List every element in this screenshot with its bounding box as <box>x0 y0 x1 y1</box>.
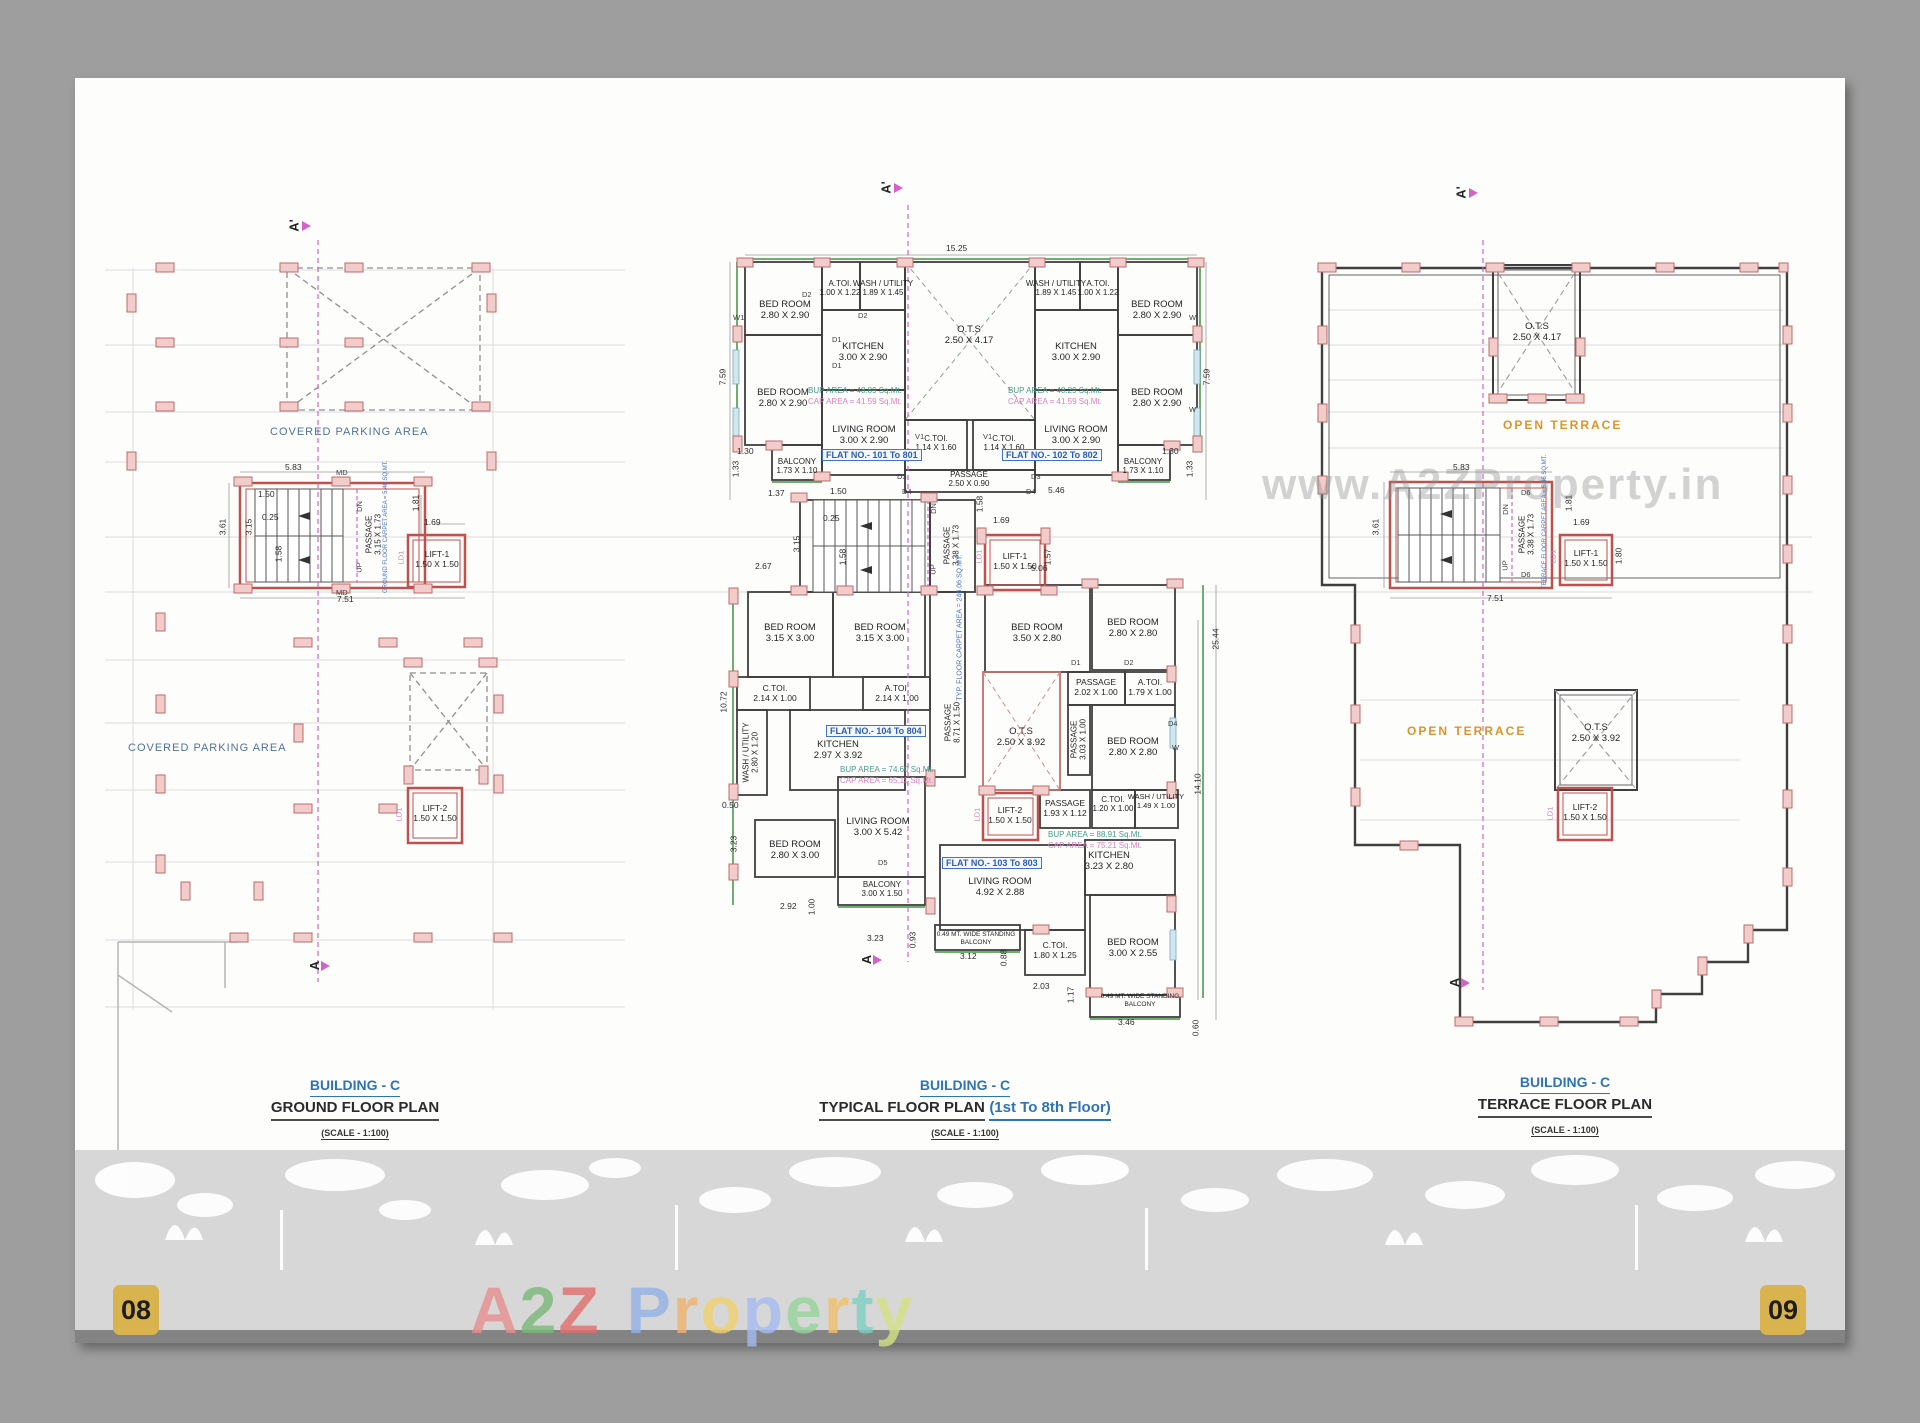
room-label: BED ROOM2.80 X 2.90 <box>1117 387 1197 409</box>
stair-dn-label: DN <box>355 501 364 512</box>
door-tag: D6 <box>1521 570 1531 579</box>
dimension: 5.46 <box>1048 485 1065 495</box>
dimension: 15.25 <box>946 243 967 253</box>
ground-plan-drawing <box>127 240 512 982</box>
room-label-passage: PASSAGE3.15 X 1.73 <box>365 489 384 579</box>
room-label: BALCONY3.00 X 1.50 <box>842 880 922 899</box>
dimension: 1.50 <box>830 486 847 496</box>
room-label-ots: O.T.S2.50 X 4.17 <box>939 324 999 346</box>
lamp-post-art <box>118 942 238 1150</box>
bup-area-note: BUP AREA = 48.89 Sq.Mt. <box>808 386 902 395</box>
drawing-sheet-page: www.A2ZProperty.in COVERED PARKING AREA … <box>0 0 1920 1423</box>
dimension: 1.80 <box>1613 548 1623 565</box>
open-terrace-label: OPEN TERRACE <box>1503 418 1622 432</box>
door-tag: D4 <box>1168 719 1178 728</box>
open-terrace-label: OPEN TERRACE <box>1407 724 1526 738</box>
dimension: 1.69 <box>424 517 441 527</box>
room-label: A.TOI.1.00 X 1.22 <box>1070 279 1126 298</box>
stair-up-label: UP <box>355 562 364 572</box>
room-label: BED ROOM2.80 X 2.90 <box>1117 299 1197 321</box>
dimension: 1.69 <box>993 515 1010 525</box>
room-label-lift2: LIFT-21.50 X 1.50 <box>1555 802 1615 822</box>
covered-parking-label: COVERED PARKING AREA <box>128 742 287 754</box>
room-label: LIVING ROOM3.00 X 2.90 <box>824 424 904 446</box>
dimension: 2.92 <box>780 901 797 911</box>
section-marker-a-bottom: A <box>862 952 882 967</box>
door-tag: D1 <box>832 361 842 370</box>
section-arrow-icon <box>1469 188 1478 198</box>
typical-plan-title: BUILDING - C TYPICAL FLOOR PLAN (1st To … <box>790 1075 1140 1143</box>
room-label-ots: O.T.S2.50 X 4.17 <box>1507 321 1567 343</box>
door-tag: D1 <box>832 335 842 344</box>
room-label-passage: PASSAGE3.38 X 1.73 <box>1518 489 1537 579</box>
dimension: 3.12 <box>960 951 977 961</box>
dimension: 3.46 <box>1118 1017 1135 1027</box>
ground-plan-title: BUILDING - C GROUND FLOOR PLAN (SCALE - … <box>230 1075 480 1143</box>
watermark-url: www.A2ZProperty.in <box>1262 460 1723 510</box>
room-label: BED ROOM2.80 X 2.90 <box>745 299 825 321</box>
carpet-area-note: TYP. FLOOR CARPET AREA = 246.06 SQ.MT. <box>957 581 964 701</box>
section-marker-a-bottom: A <box>1450 975 1470 990</box>
dimension: 7.59 <box>1201 369 1211 386</box>
room-label: WASH / UTILITY1.89 X 1.45 <box>848 279 918 298</box>
terrace-plan-drawing <box>1318 240 1792 1026</box>
dimension: 1.58 <box>837 549 847 566</box>
room-label: C.TOI.1.80 X 1.25 <box>1025 940 1085 960</box>
page-number-left: 08 <box>113 1285 159 1335</box>
dimension: 1.50 <box>258 489 275 499</box>
dimension: 5.06 <box>1031 563 1048 573</box>
dimension: 0.93 <box>907 932 917 949</box>
section-marker-a-top: A' <box>288 218 311 233</box>
room-label: PASSAGE2.50 X 0.90 <box>934 470 1004 489</box>
stair-up-label: UP <box>929 564 938 574</box>
room-label-ots: O.T.S2.50 X 3.92 <box>991 726 1051 748</box>
door-tag: D3 <box>1031 472 1041 481</box>
room-label-lift1: LIFT-11.50 X 1.50 <box>1556 548 1616 568</box>
dimension: 1.58 <box>273 546 283 563</box>
section-arrow-icon <box>894 183 903 193</box>
tree-silhouette-band <box>75 1150 1845 1330</box>
door-tag: D6 <box>1521 488 1531 497</box>
door-tag-ld1: LD1 <box>394 808 403 822</box>
room-label: KITCHEN2.97 X 3.92 <box>798 739 878 761</box>
dimension: 0.25 <box>823 513 840 523</box>
dimension: 3.15 <box>243 519 253 536</box>
tree-silhouette-art <box>75 1150 1845 1330</box>
dimension: 10.72 <box>719 691 729 712</box>
dimension: 3.23 <box>728 836 738 853</box>
dimension: 0.88 <box>998 950 1008 967</box>
dimension: 1.30 <box>737 446 754 456</box>
dimension: 2.67 <box>755 561 772 571</box>
door-tag: D2 <box>1124 658 1134 667</box>
room-label: WASH / UTILITY2.80 X 1.20 <box>742 712 761 792</box>
room-label: BED ROOM3.15 X 3.00 <box>750 622 830 644</box>
door-tag-ld1: LD1 <box>1548 550 1557 564</box>
section-arrow-icon <box>873 955 882 965</box>
section-marker-a-bottom: A <box>310 958 330 973</box>
room-label: BED ROOM2.80 X 2.80 <box>1093 736 1173 758</box>
room-label: A.TOI.1.79 X 1.00 <box>1120 677 1180 697</box>
door-tag: D4 <box>1026 487 1036 496</box>
room-label: KITCHEN3.00 X 2.90 <box>1036 341 1116 363</box>
brand-watermark: A2ZProperty <box>470 1272 914 1348</box>
cap-area-note: CAP AREA = 41.59 Sq.Mt. <box>1008 397 1102 406</box>
room-label: LIVING ROOM3.00 X 5.42 <box>838 816 918 838</box>
dimension: 14.10 <box>1193 773 1203 794</box>
window-tag: V1 <box>983 432 992 441</box>
room-label: WASH / UTILITY1.49 X 1.00 <box>1126 793 1186 811</box>
room-label: LIVING ROOM4.92 X 2.88 <box>960 876 1040 898</box>
room-label-ots: O.T.S2.50 X 3.92 <box>1566 722 1626 744</box>
dimension: 1.33 <box>1184 461 1194 478</box>
dimension: 1.30 <box>1162 446 1179 456</box>
door-tag-ld1: LD1 <box>396 551 405 565</box>
dimension: 3.61 <box>1370 519 1380 536</box>
section-marker-a-top: A' <box>880 180 903 195</box>
room-label: BED ROOM3.00 X 2.55 <box>1093 937 1173 959</box>
dimension: 2.03 <box>1033 981 1050 991</box>
section-arrow-icon <box>1461 978 1470 988</box>
door-tag: D4 <box>902 487 912 496</box>
dimension: 5.83 <box>1453 462 1470 472</box>
dimension: 3.15 <box>791 536 801 553</box>
section-arrow-icon <box>302 221 311 231</box>
window-tag: W <box>1172 743 1179 752</box>
window-tag: V1 <box>915 432 924 441</box>
dimension: 7.59 <box>717 369 727 386</box>
dimension: 1.81 <box>410 495 420 512</box>
section-marker-a-top: A' <box>1455 185 1478 200</box>
cap-area-note: CAP AREA = 75.21 Sq.Mt. <box>1048 841 1142 850</box>
dimension: 1.58 <box>974 496 984 513</box>
room-label: LIVING ROOM3.00 X 2.90 <box>1036 424 1116 446</box>
flat-number-box: FLAT NO.- 102 To 802 <box>1002 449 1102 461</box>
dimension: 0.25 <box>262 512 279 522</box>
window-tag: W1 <box>733 313 744 322</box>
room-label: BED ROOM2.80 X 3.00 <box>755 839 835 861</box>
door-tag-ld1: LD1 <box>974 550 983 564</box>
room-label-lift2: LIFT-21.50 X 1.50 <box>405 803 465 823</box>
door-tag: D1 <box>1071 658 1081 667</box>
dimension: 0.60 <box>1190 1020 1200 1037</box>
dimension: 3.23 <box>867 933 884 943</box>
bup-area-note: BUP AREA = 48.29 Sq.Mt. <box>1008 386 1102 395</box>
dimension: 0.50 <box>722 800 739 810</box>
door-tag: D2 <box>858 311 868 320</box>
cap-area-note: CAP AREA = 65.11 Sq.Mt. <box>840 776 933 785</box>
balcony-note: 0.49 MT. WIDE STANDING BALCONY <box>936 931 1016 946</box>
door-tag-md: MD <box>336 588 348 597</box>
bup-area-note: BUP AREA = 88.91 Sq.Mt. <box>1048 830 1142 839</box>
section-arrow-icon <box>321 961 330 971</box>
terrace-plan-title: BUILDING - C TERRACE FLOOR PLAN (SCALE -… <box>1440 1072 1690 1140</box>
room-label: BED ROOM2.80 X 2.80 <box>1093 617 1173 639</box>
flat-number-box: FLAT NO.- 104 To 804 <box>826 725 926 737</box>
window-tag: W <box>1189 313 1196 322</box>
sheet-bottom-strip <box>75 1330 1845 1343</box>
room-label: BALCONY1.73 X 1.10 <box>1113 457 1173 476</box>
room-label: PASSAGE3.03 X 1.00 <box>1070 699 1089 779</box>
dimension: 1.17 <box>1065 987 1075 1004</box>
door-tag-ld1: LD1 <box>972 808 981 822</box>
door-tag: D5 <box>878 858 888 867</box>
room-label: KITCHEN3.23 X 2.80 <box>1069 850 1149 872</box>
flat-number-box: FLAT NO.- 103 To 803 <box>942 857 1042 869</box>
flat-number-box: FLAT NO.- 101 To 801 <box>822 449 922 461</box>
bup-area-note: BUP AREA = 74.60 Sq.Mt. <box>840 765 934 774</box>
door-tag: D2 <box>802 290 812 299</box>
door-tag-ld1: LD1 <box>1545 807 1554 821</box>
dimension: 25.44 <box>1211 628 1221 649</box>
dimension: 7.51 <box>1487 593 1504 603</box>
dimension: 1.69 <box>1573 517 1590 527</box>
room-label: BALCONY1.73 X 1.10 <box>767 457 827 476</box>
dimension: 1.81 <box>1563 495 1573 512</box>
stair-dn-label: DN <box>1501 504 1510 515</box>
stair-up-label: UP <box>1501 560 1510 570</box>
balcony-note: 0.49 MT. WIDE STANDING BALCONY <box>1100 993 1180 1008</box>
cap-area-note: CAP AREA = 41.59 Sq.Mt. <box>808 397 902 406</box>
dimension: 1.00 <box>806 899 816 916</box>
dimension: 1.33 <box>730 461 740 478</box>
door-tag: D3 <box>897 472 907 481</box>
room-label: C.TOI.2.14 X 1.00 <box>745 683 805 703</box>
dimension: 5.83 <box>285 462 302 472</box>
stair-dn-label: DN <box>929 503 938 514</box>
carpet-area-note: TERRACE FLOOR CARPET AREA = 5.46 SQ.MT. <box>1542 469 1548 589</box>
room-label: BED ROOM3.50 X 2.80 <box>997 622 1077 644</box>
dimension: 3.61 <box>217 519 227 536</box>
carpet-area-note: GROUND FLOOR CARPET AREA = 5.46 SQ.MT. <box>383 473 389 593</box>
room-label-lift1: LIFT-11.50 X 1.50 <box>407 549 467 569</box>
dimension: 1.37 <box>768 488 785 498</box>
room-label: A.TOI.2.14 X 1.00 <box>867 683 927 703</box>
door-tag-md: MD <box>336 468 348 477</box>
room-label: BED ROOM3.15 X 3.00 <box>840 622 920 644</box>
covered-parking-label: COVERED PARKING AREA <box>270 426 429 438</box>
page-number-right: 09 <box>1760 1285 1806 1335</box>
window-tag: W <box>1189 405 1196 414</box>
